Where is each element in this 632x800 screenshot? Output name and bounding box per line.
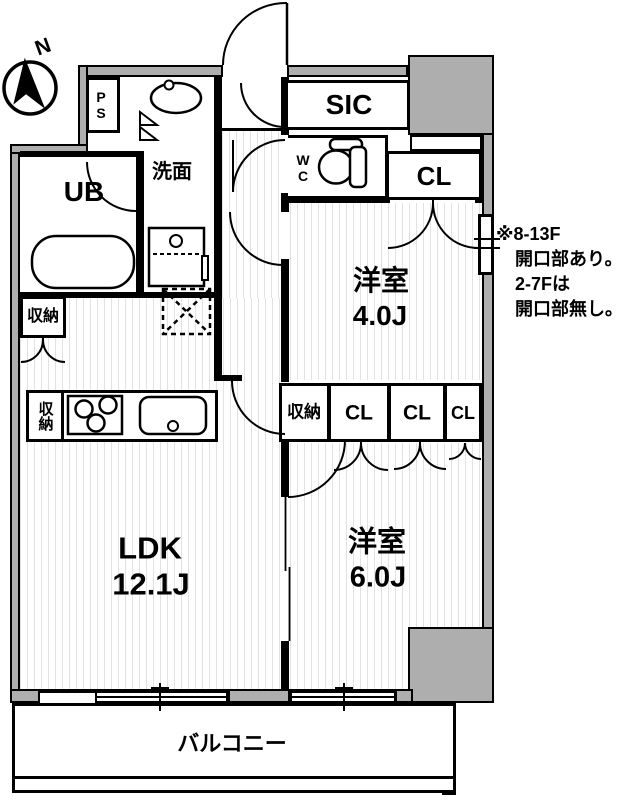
western-room-6-floor-lower (290, 627, 408, 689)
wall-top-right (287, 65, 408, 77)
wall-partition-lower (281, 641, 289, 691)
floor-note: ※8-13F 開口部あり。 2-7Fは 開口部無し。 (496, 222, 623, 322)
window-bottom-ldk (95, 691, 228, 703)
wall-left (10, 152, 20, 703)
window-bottom-western6 (290, 691, 396, 703)
note-line-2: 開口部あり。 (496, 247, 623, 272)
wall-bottom-pier (228, 689, 290, 703)
compass-circle (4, 62, 56, 114)
western-room-6-size: 6.0J (350, 564, 406, 593)
bathtub-icon (32, 236, 134, 288)
wall-right-upper (482, 133, 494, 218)
genkan-step-line (222, 128, 281, 131)
compass-needle-icon (15, 61, 43, 106)
wall-hallway-right-c (281, 259, 289, 382)
wall-top-left (78, 65, 223, 77)
wall-bottom-left (10, 689, 40, 703)
storage-mid-label: 収納 (287, 404, 321, 421)
wall-block-top-right (408, 55, 494, 135)
closet-2-label: CL (403, 403, 431, 424)
unit-bath-label: UB (64, 178, 104, 206)
note-line-4: 開口部無し。 (496, 297, 623, 322)
wall-ub-right (136, 151, 144, 298)
wc-label: WC (296, 152, 310, 184)
washing-machine-icon (149, 228, 208, 286)
hall-door-arc (241, 83, 285, 127)
wall-right-lower (482, 273, 494, 629)
closet-top-label: CL (417, 163, 452, 189)
window-right (478, 214, 494, 275)
ps-label: PS (94, 89, 108, 121)
western-room-4-name: 洋室 (353, 267, 409, 295)
ldk-name: LDK (118, 533, 182, 564)
wall-hallway-left (214, 77, 222, 380)
ldk-size: 12.1J (112, 569, 190, 600)
storage-kitchen-label: 収納 (38, 401, 53, 431)
note-line-1: ※8-13F (496, 222, 623, 247)
balcony-inner-line (14, 776, 454, 779)
washbasin-icon (151, 81, 201, 114)
ps-fold-door-icon (140, 112, 157, 140)
western-room-6-name: 洋室 (348, 529, 406, 558)
sliding-partition (286, 497, 290, 641)
storage-ldk-label: 収納 (27, 309, 59, 325)
note-line-3: 2-7Fは (496, 272, 623, 297)
closet-3-label: CL (451, 404, 475, 422)
wall-ub-top (20, 151, 142, 157)
compass-label: N (32, 35, 53, 60)
wall-hall-stub (214, 375, 242, 381)
balcony-label: バルコニー (177, 733, 287, 755)
wall-bottom-right-seg (395, 689, 413, 703)
floor-plan: N PS 洗面 UB SIC WC CL 洋室 4.0J 収納 CL CL CL… (0, 0, 632, 800)
wall-partition-upper (281, 435, 289, 497)
ldk-floor (20, 298, 281, 689)
sic-label: SIC (326, 91, 373, 119)
washroom-label: 洗面 (152, 162, 192, 182)
western-room-4-size: 4.0J (353, 302, 408, 330)
alcove-box (410, 135, 482, 151)
closet-1-label: CL (345, 403, 373, 424)
entrance-door-arc (223, 3, 287, 65)
wall-notch-bottom-right (408, 627, 494, 703)
